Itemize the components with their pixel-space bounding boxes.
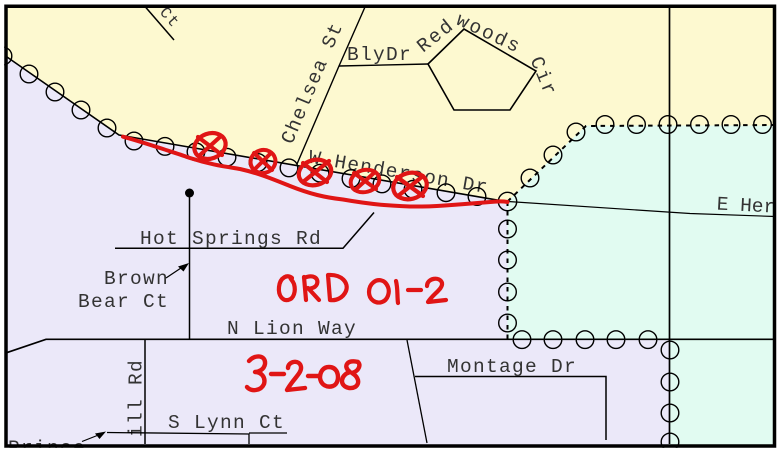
svg-text:Hot Springs Rd: Hot Springs Rd (140, 228, 322, 250)
svg-text:ill Rd: ill Rd (126, 359, 148, 437)
svg-text:Montage Dr: Montage Dr (447, 356, 577, 378)
svg-text:Brown: Brown (104, 268, 169, 290)
svg-text:Bear Ct: Bear Ct (78, 291, 169, 313)
svg-text:BlyDr: BlyDr (347, 44, 412, 66)
svg-text:S Lynn Ct: S Lynn Ct (168, 412, 285, 434)
svg-text:E Her: E Her (716, 194, 776, 219)
svg-text:N Lion Way: N Lion Way (227, 318, 357, 340)
